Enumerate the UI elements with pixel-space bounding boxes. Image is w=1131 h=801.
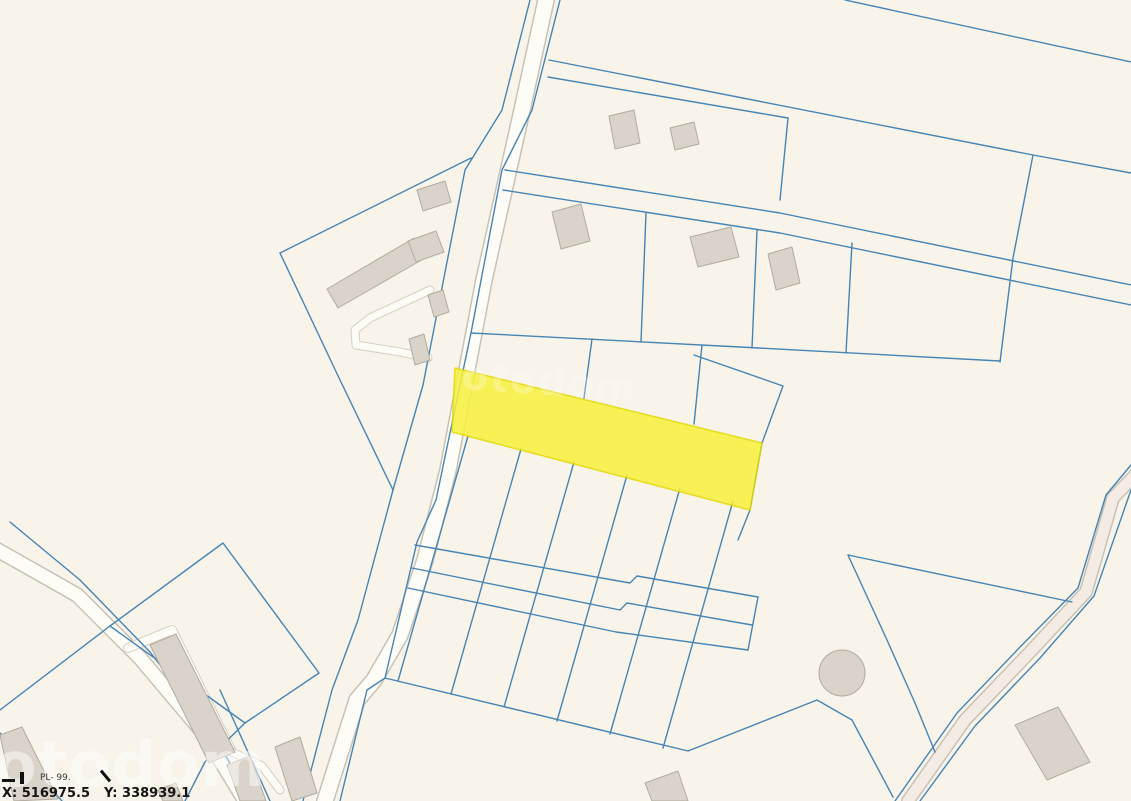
map-viewport[interactable] [0, 0, 1131, 801]
building-round [819, 650, 865, 696]
building [609, 110, 640, 149]
map-canvas[interactable] [0, 0, 1131, 801]
